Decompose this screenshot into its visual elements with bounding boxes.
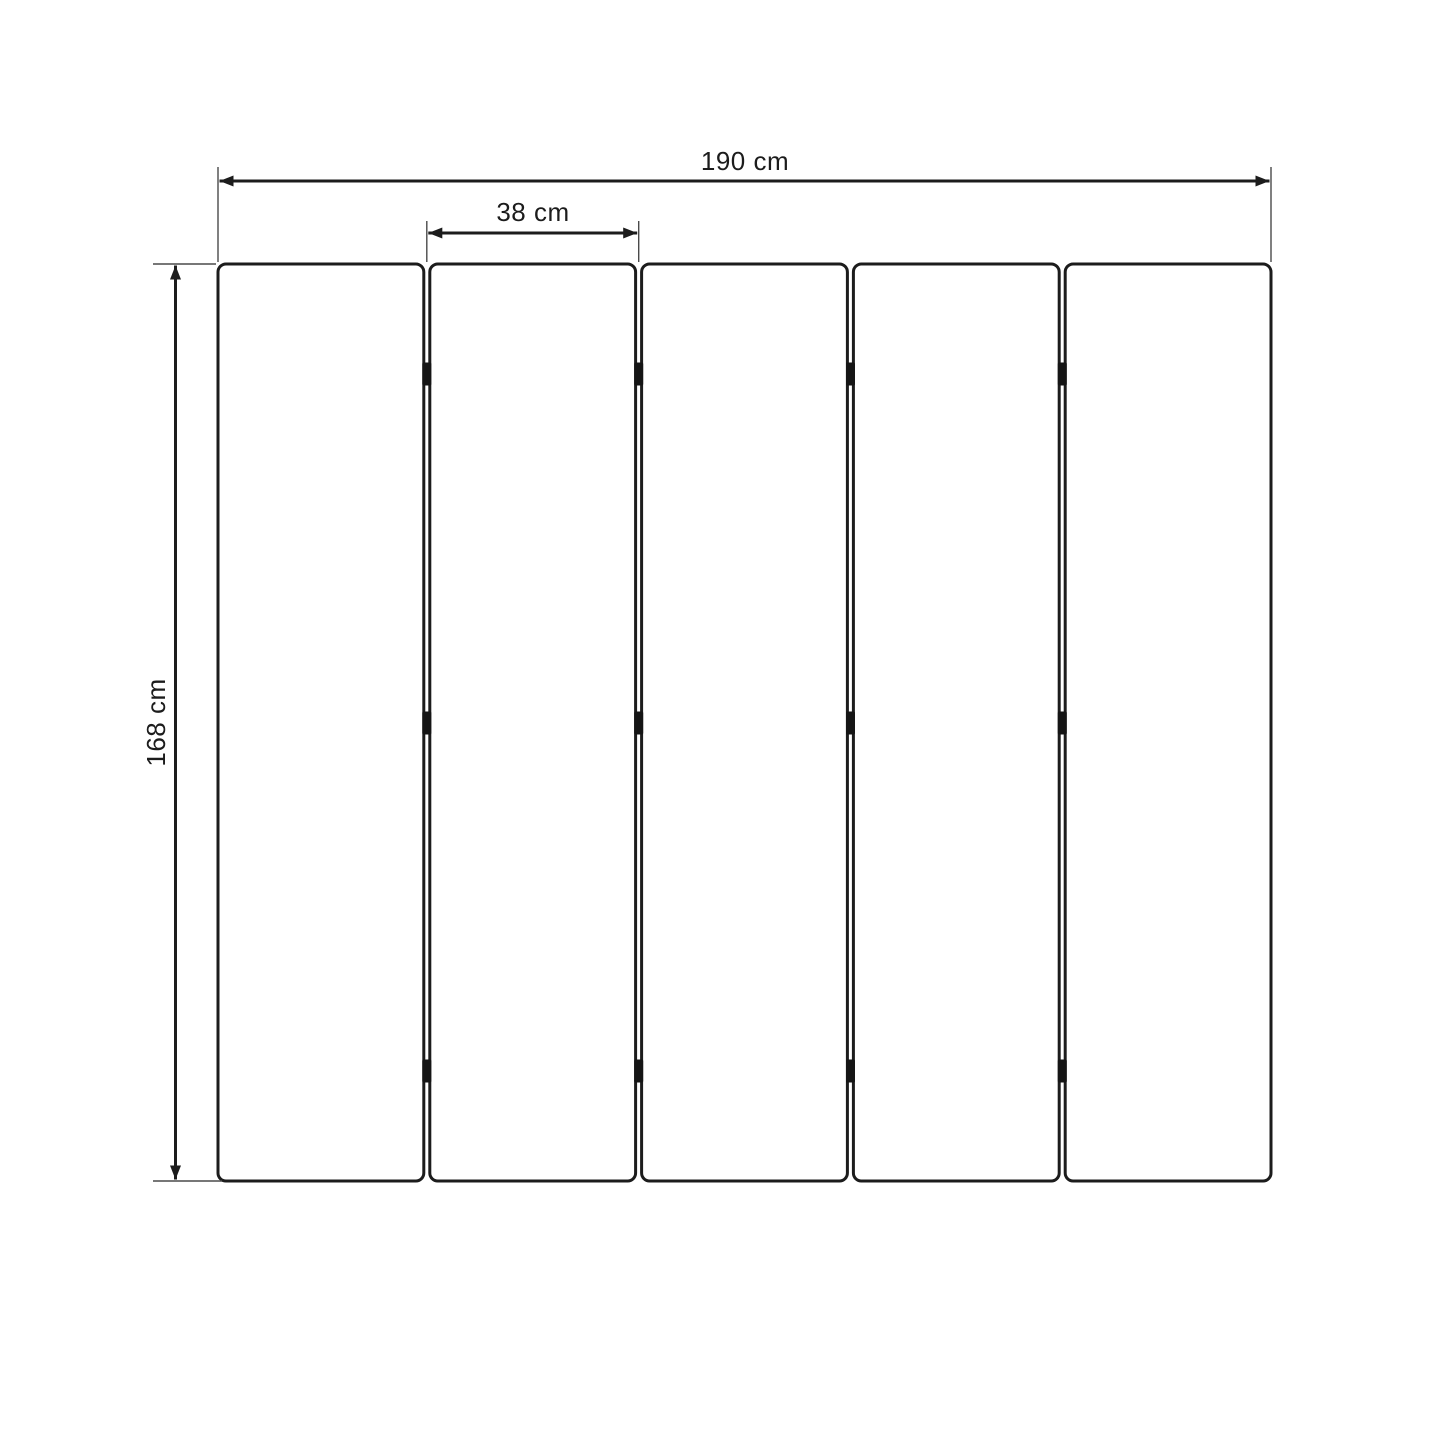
panel-4 <box>853 264 1059 1181</box>
hinge <box>1058 712 1067 735</box>
panels <box>218 264 1271 1181</box>
hinge <box>1058 363 1067 386</box>
panel-dimension-diagram: 190 cm 38 cm 168 cm <box>0 0 1445 1445</box>
panel-2 <box>430 264 636 1181</box>
hinge <box>846 363 855 386</box>
panel-3 <box>642 264 848 1181</box>
hinge <box>634 712 643 735</box>
dimension-height: 168 cm <box>141 264 222 1181</box>
hinge <box>422 363 431 386</box>
dimension-total-width: 190 cm <box>218 146 1271 262</box>
dimension-label-height: 168 cm <box>141 678 171 766</box>
panel-1 <box>218 264 424 1181</box>
panel-5 <box>1065 264 1271 1181</box>
dimension-label-total-width: 190 cm <box>701 146 789 176</box>
hinge <box>634 1060 643 1083</box>
hinge <box>1058 1060 1067 1083</box>
hinge <box>422 712 431 735</box>
dimension-panel-width: 38 cm <box>427 197 639 262</box>
hinge <box>634 363 643 386</box>
hinge <box>846 1060 855 1083</box>
diagram-canvas: 190 cm 38 cm 168 cm <box>0 0 1445 1445</box>
dimension-label-panel-width: 38 cm <box>496 197 569 227</box>
hinge <box>422 1060 431 1083</box>
hinge <box>846 712 855 735</box>
